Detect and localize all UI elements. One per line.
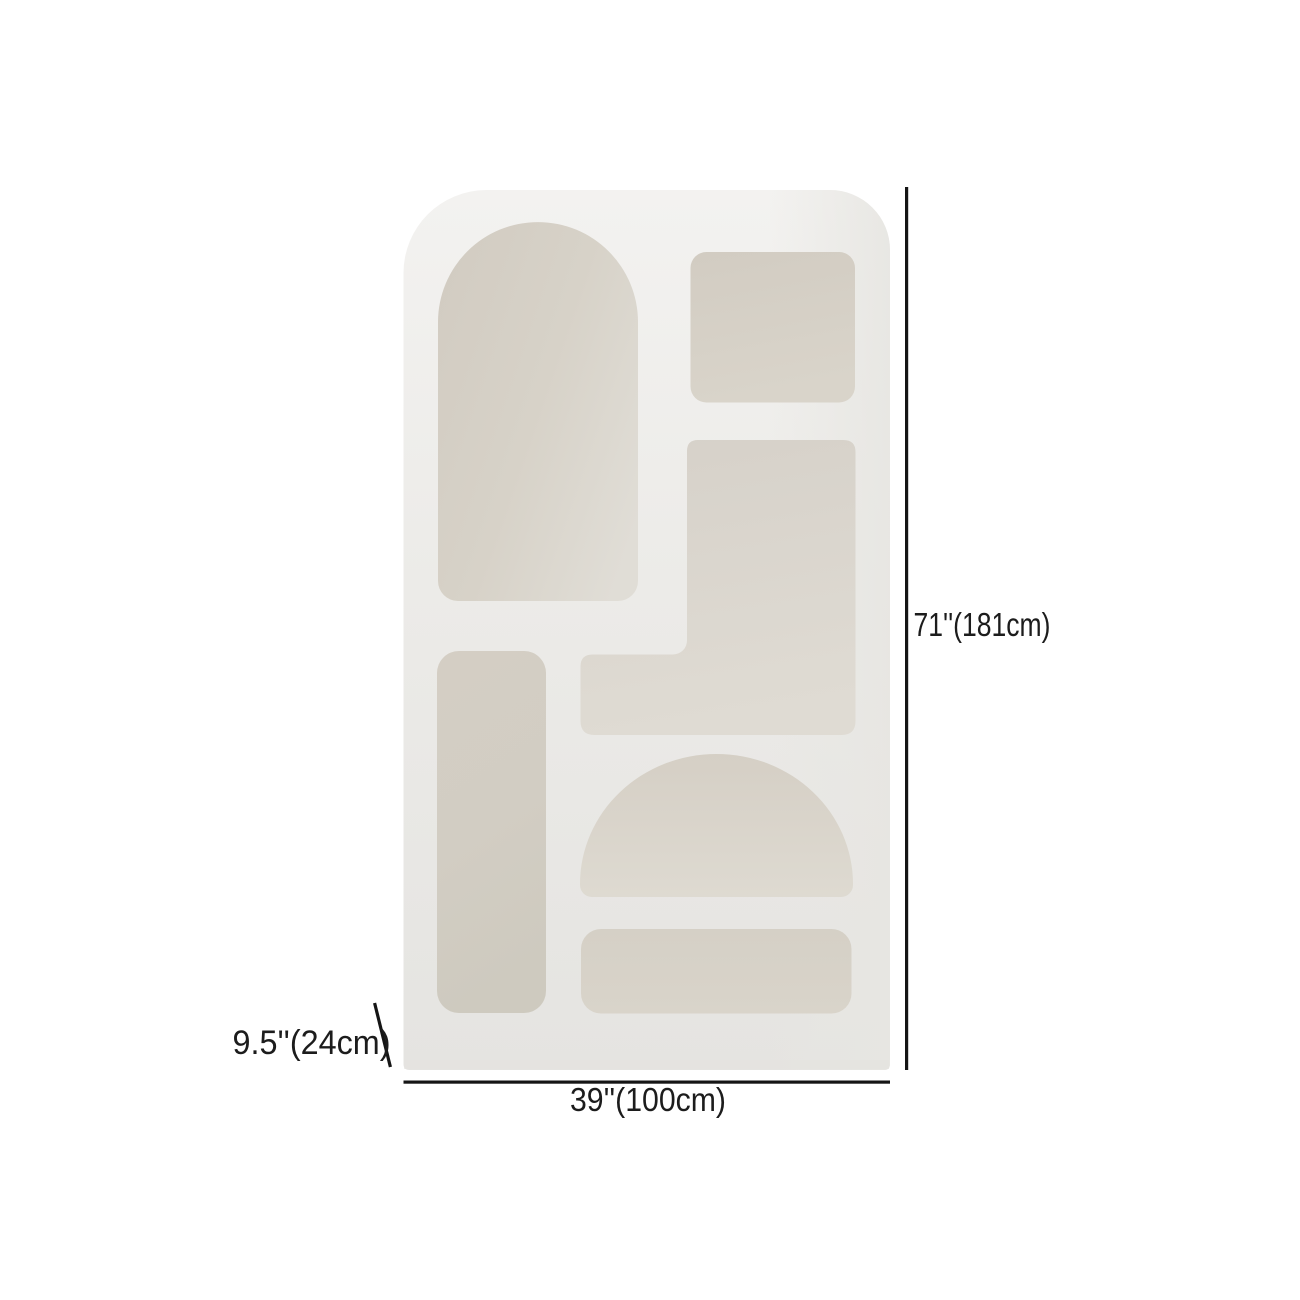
svg-text:71''(181cm): 71''(181cm) bbox=[914, 606, 1051, 643]
svg-text:39''(100cm): 39''(100cm) bbox=[570, 1081, 726, 1118]
svg-text:9.5''(24cm): 9.5''(24cm) bbox=[233, 1024, 391, 1062]
